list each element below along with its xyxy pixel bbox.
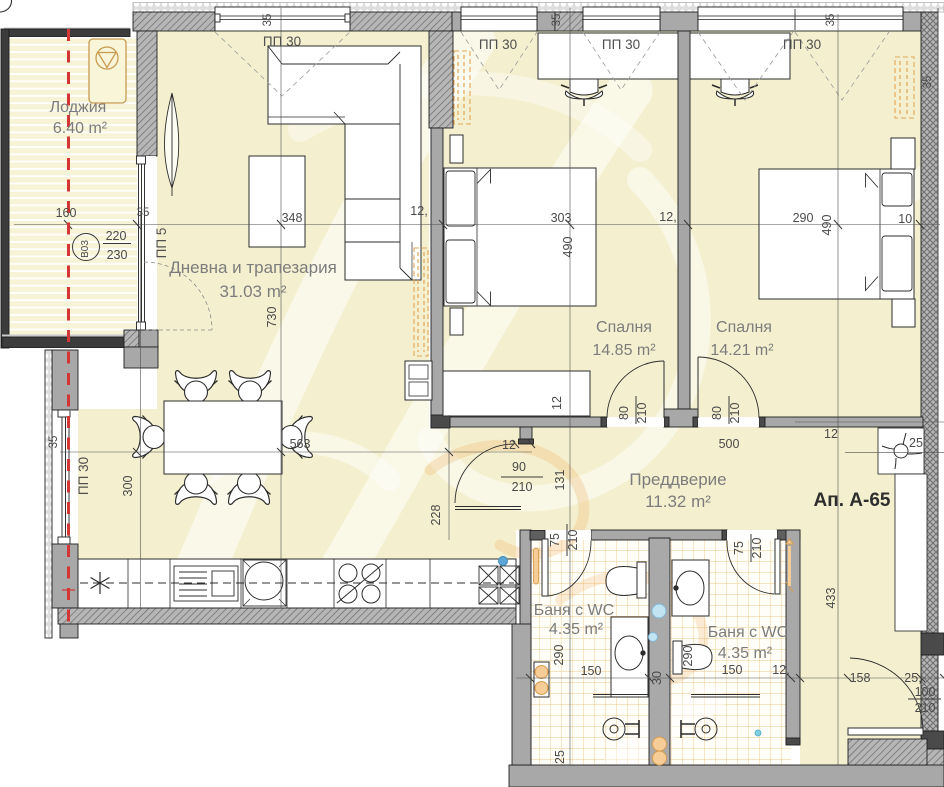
svg-text:80: 80	[710, 406, 724, 420]
svg-text:Преддверие: Преддверие	[629, 470, 726, 489]
svg-text:ПП 30: ПП 30	[76, 457, 91, 495]
svg-text:Спалня: Спалня	[596, 319, 652, 336]
svg-text:10,: 10,	[898, 212, 915, 226]
svg-text:150: 150	[581, 664, 602, 678]
svg-text:35: 35	[48, 436, 60, 449]
svg-text:14.85 m²: 14.85 m²	[592, 342, 656, 359]
svg-text:160: 160	[56, 206, 77, 220]
svg-text:210: 210	[566, 530, 580, 551]
svg-text:Баня с WC: Баня с WC	[534, 602, 614, 619]
svg-text:12: 12	[502, 438, 516, 452]
svg-text:228: 228	[429, 505, 443, 526]
svg-text:35: 35	[922, 76, 934, 89]
svg-text:80: 80	[617, 406, 631, 420]
svg-text:12,: 12,	[659, 210, 676, 224]
svg-text:12: 12	[550, 396, 564, 410]
svg-text:563: 563	[290, 437, 311, 451]
svg-text:290: 290	[681, 646, 695, 667]
svg-text:ПП 30: ПП 30	[263, 34, 301, 49]
svg-text:75: 75	[548, 533, 562, 547]
svg-text:150: 150	[722, 663, 743, 677]
svg-text:11.32 m²: 11.32 m²	[645, 492, 711, 511]
svg-text:210: 210	[635, 403, 649, 424]
svg-text:500: 500	[719, 437, 740, 451]
svg-text:35: 35	[137, 207, 150, 219]
svg-text:Ап. А-65: Ап. А-65	[814, 490, 891, 511]
svg-text:220: 220	[106, 229, 127, 243]
svg-text:730: 730	[265, 307, 279, 328]
svg-text:158: 158	[850, 671, 871, 685]
svg-text:Дневна и трапезария: Дневна и трапезария	[169, 258, 337, 277]
svg-text:12,: 12,	[410, 204, 427, 218]
svg-text:100: 100	[915, 685, 936, 699]
svg-text:25: 25	[553, 750, 567, 764]
svg-text:ПП 30: ПП 30	[783, 37, 821, 52]
svg-text:30: 30	[650, 671, 664, 685]
svg-text:В03: В03	[80, 240, 91, 258]
svg-text:4.35 m²: 4.35 m²	[549, 621, 604, 638]
svg-text:6.40 m²: 6.40 m²	[53, 120, 108, 137]
svg-text:210: 210	[728, 403, 742, 424]
svg-text:25,: 25,	[904, 671, 921, 685]
svg-text:31.03 m²: 31.03 m²	[219, 282, 286, 301]
svg-text:35: 35	[262, 14, 274, 27]
svg-text:Лоджия: Лоджия	[50, 99, 107, 116]
svg-text:300: 300	[121, 476, 135, 497]
svg-text:210: 210	[750, 538, 764, 559]
svg-text:90: 90	[512, 460, 526, 474]
svg-text:12,: 12,	[772, 663, 789, 677]
svg-text:230: 230	[107, 248, 128, 262]
svg-text:490: 490	[820, 215, 834, 236]
svg-text:12: 12	[824, 427, 838, 441]
svg-text:ПП 30: ПП 30	[479, 37, 517, 52]
svg-text:35: 35	[825, 14, 837, 27]
svg-text:Спалня: Спалня	[716, 319, 772, 336]
svg-text:4.35 m²: 4.35 m²	[718, 645, 773, 662]
svg-text:75: 75	[732, 541, 746, 555]
svg-text:25: 25	[909, 436, 923, 450]
svg-text:303: 303	[551, 211, 572, 225]
svg-text:290: 290	[793, 211, 814, 225]
svg-text:348: 348	[282, 211, 303, 225]
svg-text:14.21 m²: 14.21 m²	[710, 342, 774, 359]
svg-text:35: 35	[551, 14, 563, 27]
svg-text:131: 131	[553, 470, 567, 491]
svg-text:ПП 30: ПП 30	[602, 37, 640, 52]
svg-text:210: 210	[915, 701, 936, 715]
svg-text:433: 433	[824, 588, 838, 609]
svg-text:290: 290	[552, 645, 566, 666]
svg-text:Баня с WC: Баня с WC	[708, 624, 788, 641]
svg-text:210: 210	[512, 480, 533, 494]
svg-text:ПП 5: ПП 5	[154, 228, 169, 259]
svg-text:490: 490	[561, 237, 575, 258]
